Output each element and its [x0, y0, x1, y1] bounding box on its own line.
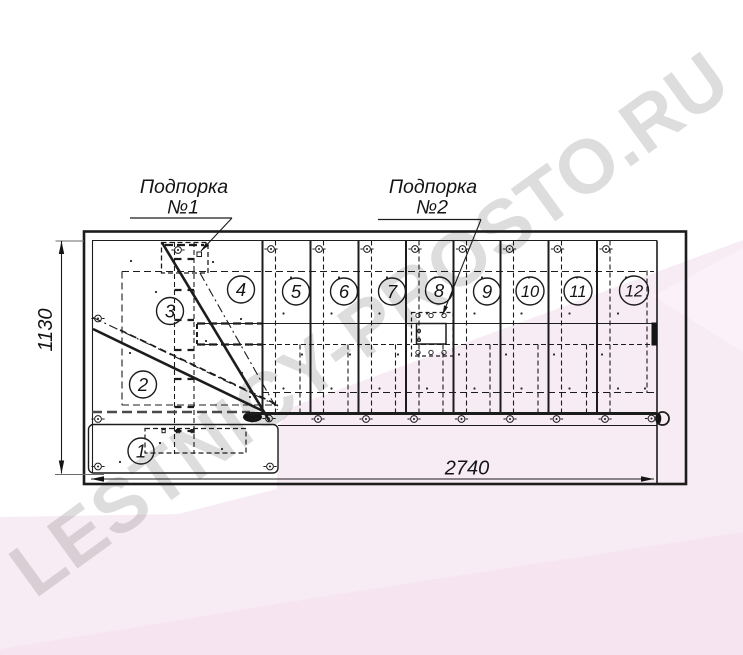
step-number: 2: [137, 374, 149, 395]
dimension-height: 1130: [35, 241, 104, 475]
step-marker: 2: [130, 371, 157, 398]
step-marker: 4: [228, 276, 255, 303]
step-number: 3: [165, 300, 176, 321]
support2-label-line1: Подпорка: [389, 176, 477, 198]
step-number: 4: [236, 279, 246, 300]
support1-label-line2: №1: [167, 197, 199, 219]
step-number: 10: [521, 283, 540, 301]
dimension-height-value: 1130: [35, 308, 57, 351]
step-marker: 10: [516, 277, 544, 305]
step-number: 11: [569, 283, 586, 301]
dimension-length-value: 2740: [444, 458, 490, 480]
step-marker: 11: [564, 277, 592, 305]
support1-label-line1: Подпорка: [140, 176, 228, 198]
step-number: 5: [291, 281, 302, 302]
step-number: 7: [387, 281, 398, 302]
step-number: 8: [434, 280, 445, 301]
step-marker: 3: [157, 298, 184, 325]
step-number: 1: [136, 440, 146, 461]
staircase-plan-drawing: LESTNICY-PROSTO.RU: [0, 0, 743, 655]
step-number: 12: [625, 282, 643, 300]
support2-label-line2: №2: [416, 197, 448, 219]
step-marker: 5: [283, 278, 310, 305]
staircase-plan-page: LESTNICY-PROSTO.RU: [0, 0, 743, 655]
step-number: 6: [339, 281, 350, 302]
step-number: 9: [482, 281, 492, 302]
support1-box: [162, 243, 209, 274]
